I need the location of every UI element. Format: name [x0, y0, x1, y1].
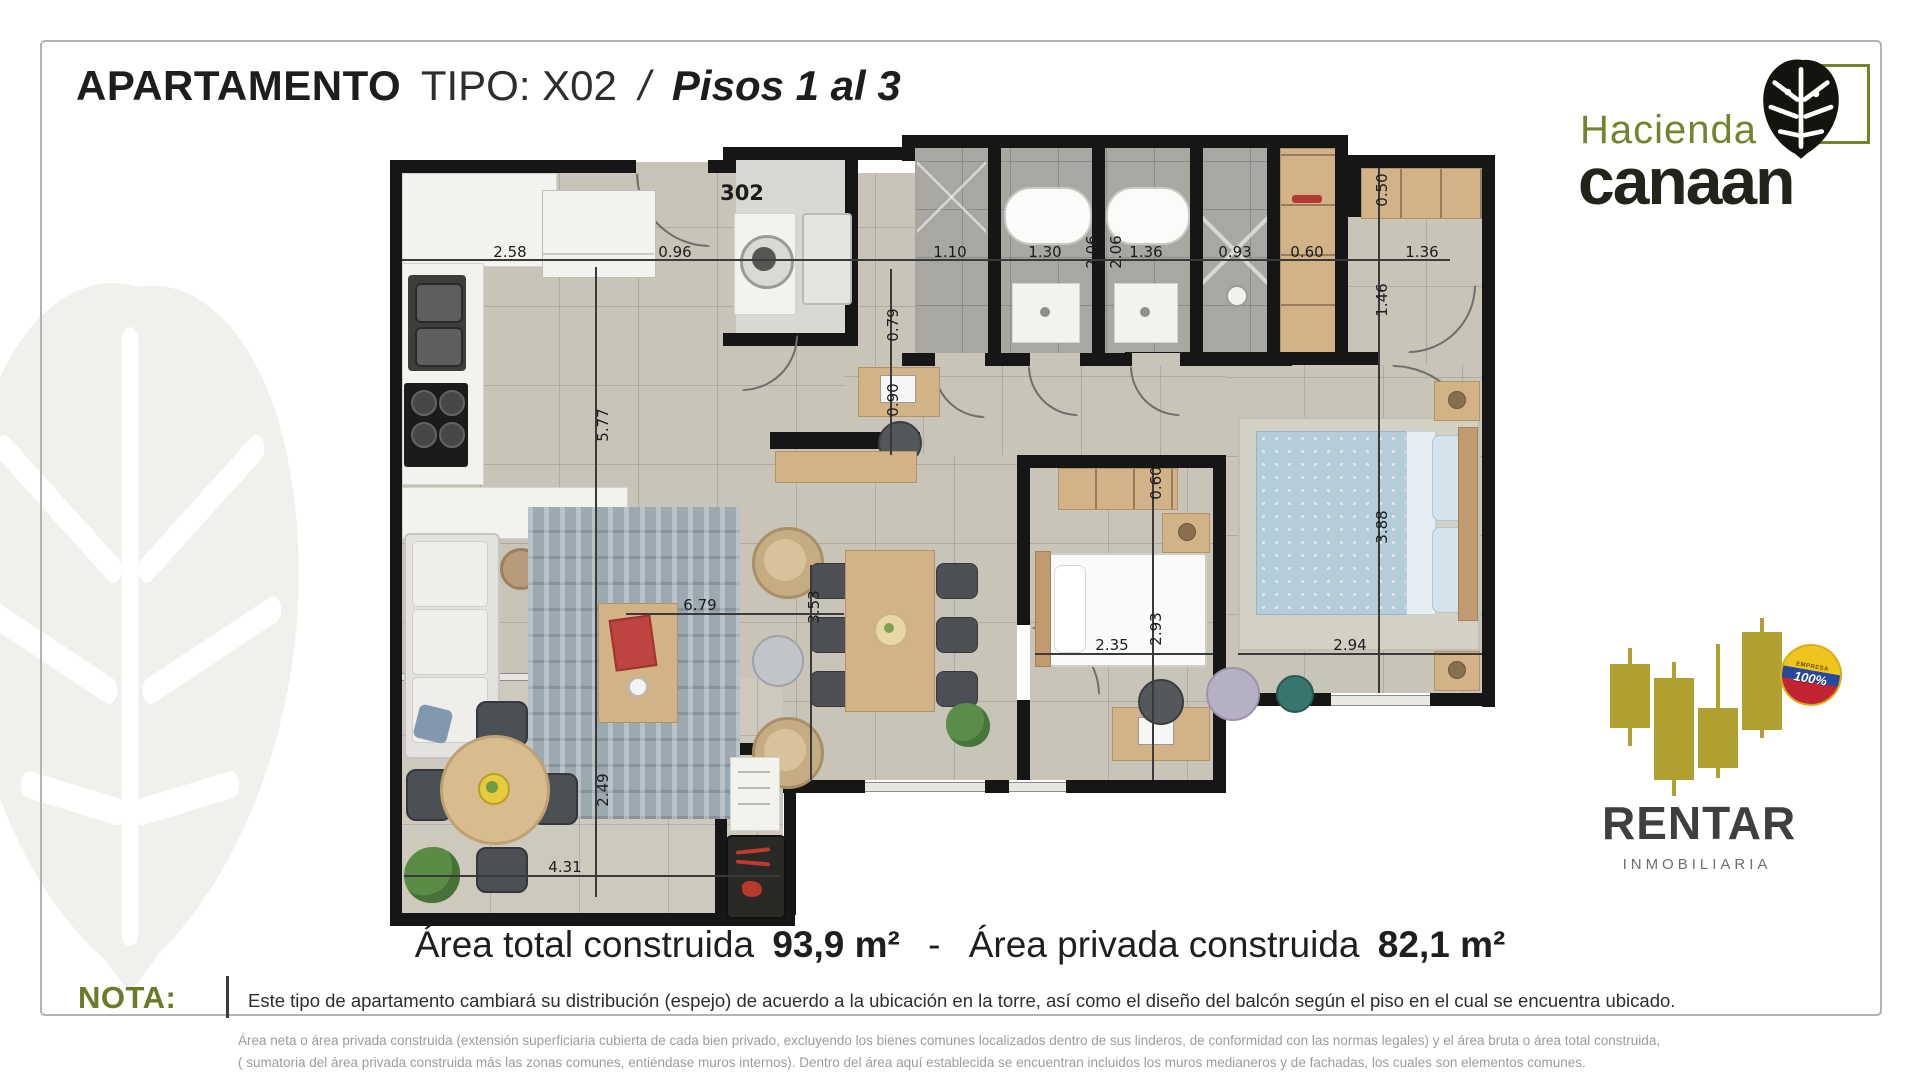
dimension-label: 2.58	[493, 243, 526, 261]
legal-text: Área neta o área privada construida (ext…	[238, 1030, 1898, 1074]
dimension-label: 0.90	[884, 383, 902, 416]
fridge-door-line	[542, 253, 654, 255]
dimension-label: 6.79	[683, 596, 716, 614]
area-total-label: Área total construida	[415, 924, 754, 965]
area-total-value: 93,9 m²	[772, 924, 900, 965]
legal-line-2: ( sumatoria del área privada construida …	[238, 1052, 1898, 1074]
bed-headboard	[1458, 427, 1478, 621]
fridge	[542, 190, 656, 278]
window-sill	[865, 782, 985, 792]
page-title: APARTAMENTO TIPO: X02 / Pisos 1 al 3	[76, 62, 901, 110]
area-private-value: 82,1 m²	[1378, 924, 1506, 965]
dimension-label: 2.94	[1333, 636, 1366, 654]
wall	[902, 135, 1348, 148]
table-bowl-fruit	[486, 781, 498, 793]
lamp	[1178, 523, 1196, 541]
faucet-dot	[1140, 307, 1150, 317]
wall	[1017, 700, 1030, 780]
wall	[1335, 148, 1348, 365]
dimension-label: 2.35	[1095, 636, 1128, 654]
wall	[390, 160, 636, 173]
lamp	[1448, 391, 1466, 409]
title-type: TIPO: X02	[421, 62, 617, 109]
grill-meat	[742, 881, 762, 897]
sofa-cushion	[412, 541, 488, 607]
heater-coil	[738, 803, 770, 805]
entry-threshold	[636, 162, 708, 173]
wall	[1482, 230, 1495, 707]
dimension-label: 0.60	[1290, 243, 1323, 261]
hacienda-canaan-logo: Hacienda canaan	[1578, 58, 1890, 228]
balcony-chair	[476, 847, 528, 893]
title-apartment: APARTAMENTO	[76, 62, 401, 109]
plant	[946, 703, 990, 747]
dining-chair	[936, 671, 978, 707]
wall	[1017, 468, 1030, 625]
dimension-label: 0.79	[884, 308, 902, 341]
sink-bowl	[415, 283, 463, 323]
dining-chair	[936, 563, 978, 599]
heater-coil	[738, 787, 770, 789]
burner	[411, 422, 437, 448]
faucet-dot	[1040, 307, 1050, 317]
candlestick-bar	[1698, 708, 1738, 768]
sofa-cushion	[412, 609, 488, 675]
pouf	[1206, 667, 1260, 721]
dimension-label: 4.31	[548, 858, 581, 876]
wall	[1280, 352, 1348, 365]
area-summary: Área total construida 93,9 m² - Área pri…	[340, 924, 1580, 966]
cup	[628, 677, 648, 697]
dimension-label: 0.96	[658, 243, 691, 261]
dimension-label: 1.46	[1373, 283, 1391, 316]
dimension-line	[890, 269, 892, 455]
bed-headboard	[1035, 551, 1051, 667]
dimension-label: 1.30	[1028, 243, 1061, 261]
water-heater	[730, 757, 780, 831]
magazine	[609, 614, 658, 671]
shower-tiles	[917, 151, 986, 243]
rentar-logo: EMPRESA 100% RENTAR INMOBILIARIA	[1602, 616, 1862, 891]
area-separator: -	[928, 924, 940, 965]
dimension-label: 0.60	[1147, 466, 1165, 499]
nota-divider	[226, 976, 229, 1018]
dimension-label: 2.06	[1107, 235, 1125, 268]
dimension-line	[1378, 168, 1380, 693]
armchair-seat	[764, 539, 806, 581]
burner	[439, 422, 465, 448]
dimension-label: 1.10	[933, 243, 966, 261]
candlestick-bar	[1610, 664, 1650, 728]
kitchen-counter	[402, 173, 557, 267]
wall	[1482, 155, 1495, 233]
sink-bowl	[415, 327, 463, 367]
agency-subtitle: INMOBILIARIA	[1602, 856, 1792, 873]
wall	[723, 147, 915, 160]
dimension-label: 0.93	[1218, 243, 1251, 261]
dining-chair	[936, 617, 978, 653]
floor-plan: 302 2.58 0.96 1.10 1.30 2.06 2.06 1.36 0…	[390, 135, 1520, 935]
wall	[390, 160, 402, 743]
wall	[1348, 155, 1495, 168]
wall	[1017, 455, 1226, 468]
wall	[1190, 148, 1203, 353]
pillow	[1054, 565, 1086, 653]
nota-label: NOTA:	[78, 980, 176, 1016]
door-gap	[1030, 353, 1080, 366]
title-floors: Pisos 1 al 3	[672, 62, 901, 109]
unit-number: 302	[720, 181, 764, 205]
tv-console	[775, 451, 917, 483]
accent-table	[1276, 675, 1314, 713]
door-gap	[935, 353, 985, 366]
dimension-label: 2.93	[1147, 612, 1165, 645]
centerpiece-fruit	[884, 623, 894, 633]
wall	[1213, 455, 1226, 793]
window-sill	[1331, 695, 1430, 706]
dimension-label: 3.88	[1373, 510, 1391, 543]
dimension-label: 2.06	[1083, 235, 1101, 268]
shower-head	[1226, 285, 1248, 307]
dimension-line	[404, 875, 780, 877]
candlestick-bar	[1654, 678, 1694, 780]
lamp	[1448, 661, 1466, 679]
wall	[985, 780, 1009, 793]
side-table	[752, 635, 804, 687]
dimension-label: 0.50	[1373, 173, 1391, 206]
burner	[439, 390, 465, 416]
burner	[411, 390, 437, 416]
dimension-label: 5.77	[594, 408, 612, 441]
wall	[988, 148, 1001, 353]
title-separator: /	[639, 62, 651, 109]
certification-badge: EMPRESA 100%	[1775, 639, 1847, 711]
bathtub	[1004, 187, 1092, 245]
area-private-label: Área privada construida	[969, 924, 1360, 965]
dimension-label: 2.49	[594, 773, 612, 806]
candlestick-bar	[1742, 632, 1782, 730]
window-sill	[1009, 782, 1066, 792]
door-gap	[1132, 353, 1180, 366]
linen-decor	[1292, 195, 1322, 203]
wall	[1267, 148, 1280, 353]
dimension-label: 1.36	[1129, 243, 1162, 261]
office-chair	[1138, 679, 1184, 725]
legal-line-1: Área neta o área privada construida (ext…	[238, 1030, 1898, 1052]
wall	[1066, 780, 1226, 793]
dimension-label: 3.53	[805, 590, 823, 623]
wall	[390, 735, 402, 926]
wall	[1430, 693, 1495, 706]
heater-coil	[738, 771, 770, 773]
wall	[1348, 155, 1361, 217]
nota-text: Este tipo de apartamento cambiará su dis…	[248, 990, 1675, 1012]
dimension-label: 1.36	[1405, 243, 1438, 261]
brand-canaan: canaan	[1578, 148, 1793, 214]
agency-name: RENTAR	[1602, 796, 1792, 850]
